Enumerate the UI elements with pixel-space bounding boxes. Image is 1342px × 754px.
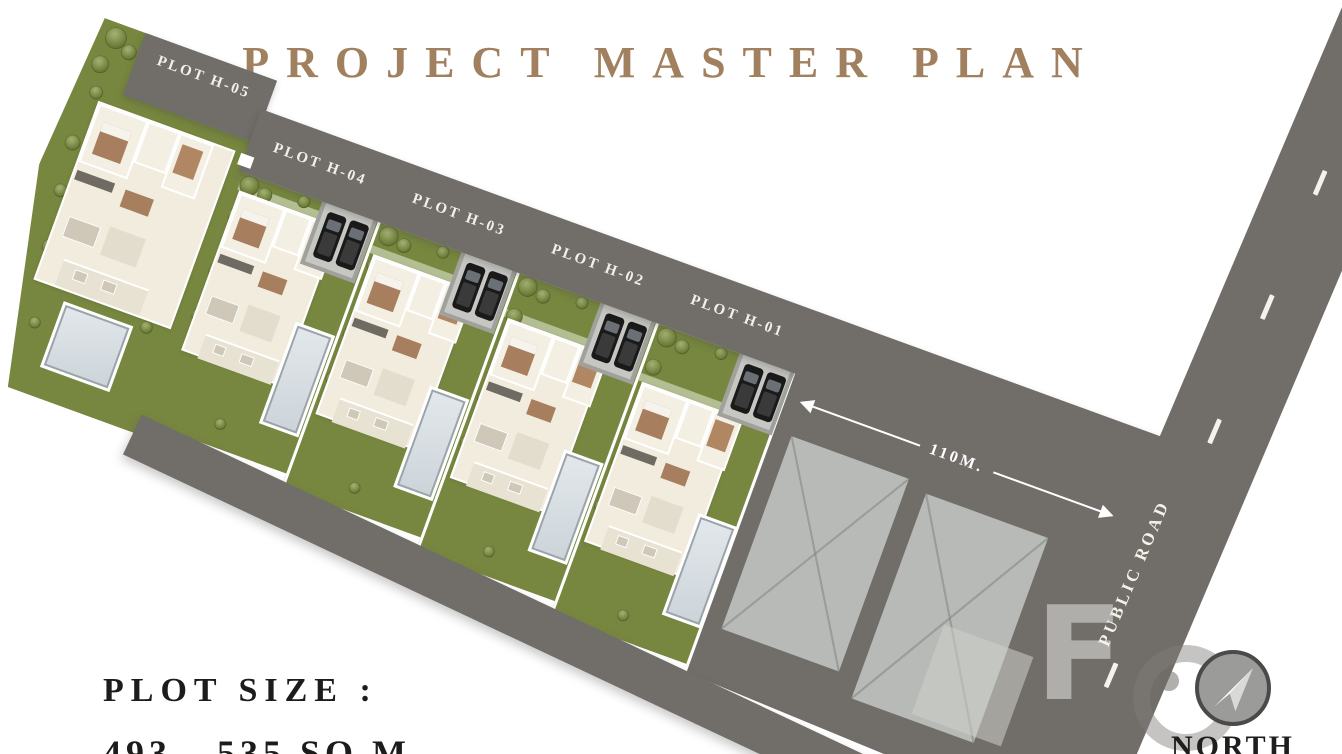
tree-icon	[88, 53, 111, 76]
rug	[508, 432, 550, 470]
dining-table	[526, 399, 556, 423]
tree-icon	[347, 480, 362, 495]
sofa	[339, 359, 374, 388]
tree-icon	[87, 84, 105, 102]
plot-size-heading: PLOT SIZE :	[103, 672, 378, 710]
rug	[374, 368, 416, 406]
kitchen-counter	[74, 170, 115, 193]
tree-icon	[481, 544, 496, 559]
site-plan: PLOT H-05 PLOT H-04 PLOT H-03 PLOT H-02 …	[0, 40, 1232, 754]
dining-table	[392, 335, 422, 359]
lane-dash	[1313, 170, 1328, 196]
sofa	[205, 295, 240, 324]
tree-icon	[615, 608, 630, 623]
plot-size-note: PLOT SIZE : 493 - 535 SQ.M	[103, 672, 378, 710]
page-title: PROJECT MASTER PLAN	[242, 37, 1100, 88]
dining-table	[660, 463, 690, 487]
plot-size-value: 493 - 535 SQ.M	[103, 732, 411, 754]
rug	[239, 305, 281, 343]
villa-pool	[40, 301, 133, 392]
tree-icon	[27, 315, 42, 330]
dining-table	[258, 271, 288, 295]
dining-table	[120, 190, 154, 217]
north-label: NORTH	[1150, 730, 1316, 754]
rug	[100, 226, 146, 267]
master-plan-page: PROJECT MASTER PLAN PLOT H-05 PLOT H-04 …	[0, 0, 1342, 754]
sofa	[608, 487, 643, 516]
sofa	[62, 216, 101, 248]
tree-icon	[213, 416, 228, 431]
lane-dash	[1104, 662, 1119, 688]
compass-icon	[1193, 648, 1273, 728]
rug	[642, 496, 684, 534]
north-compass: NORTH	[1150, 648, 1316, 754]
sofa	[473, 423, 508, 452]
lane-dash	[1207, 418, 1222, 444]
lane-dash	[1260, 294, 1275, 320]
